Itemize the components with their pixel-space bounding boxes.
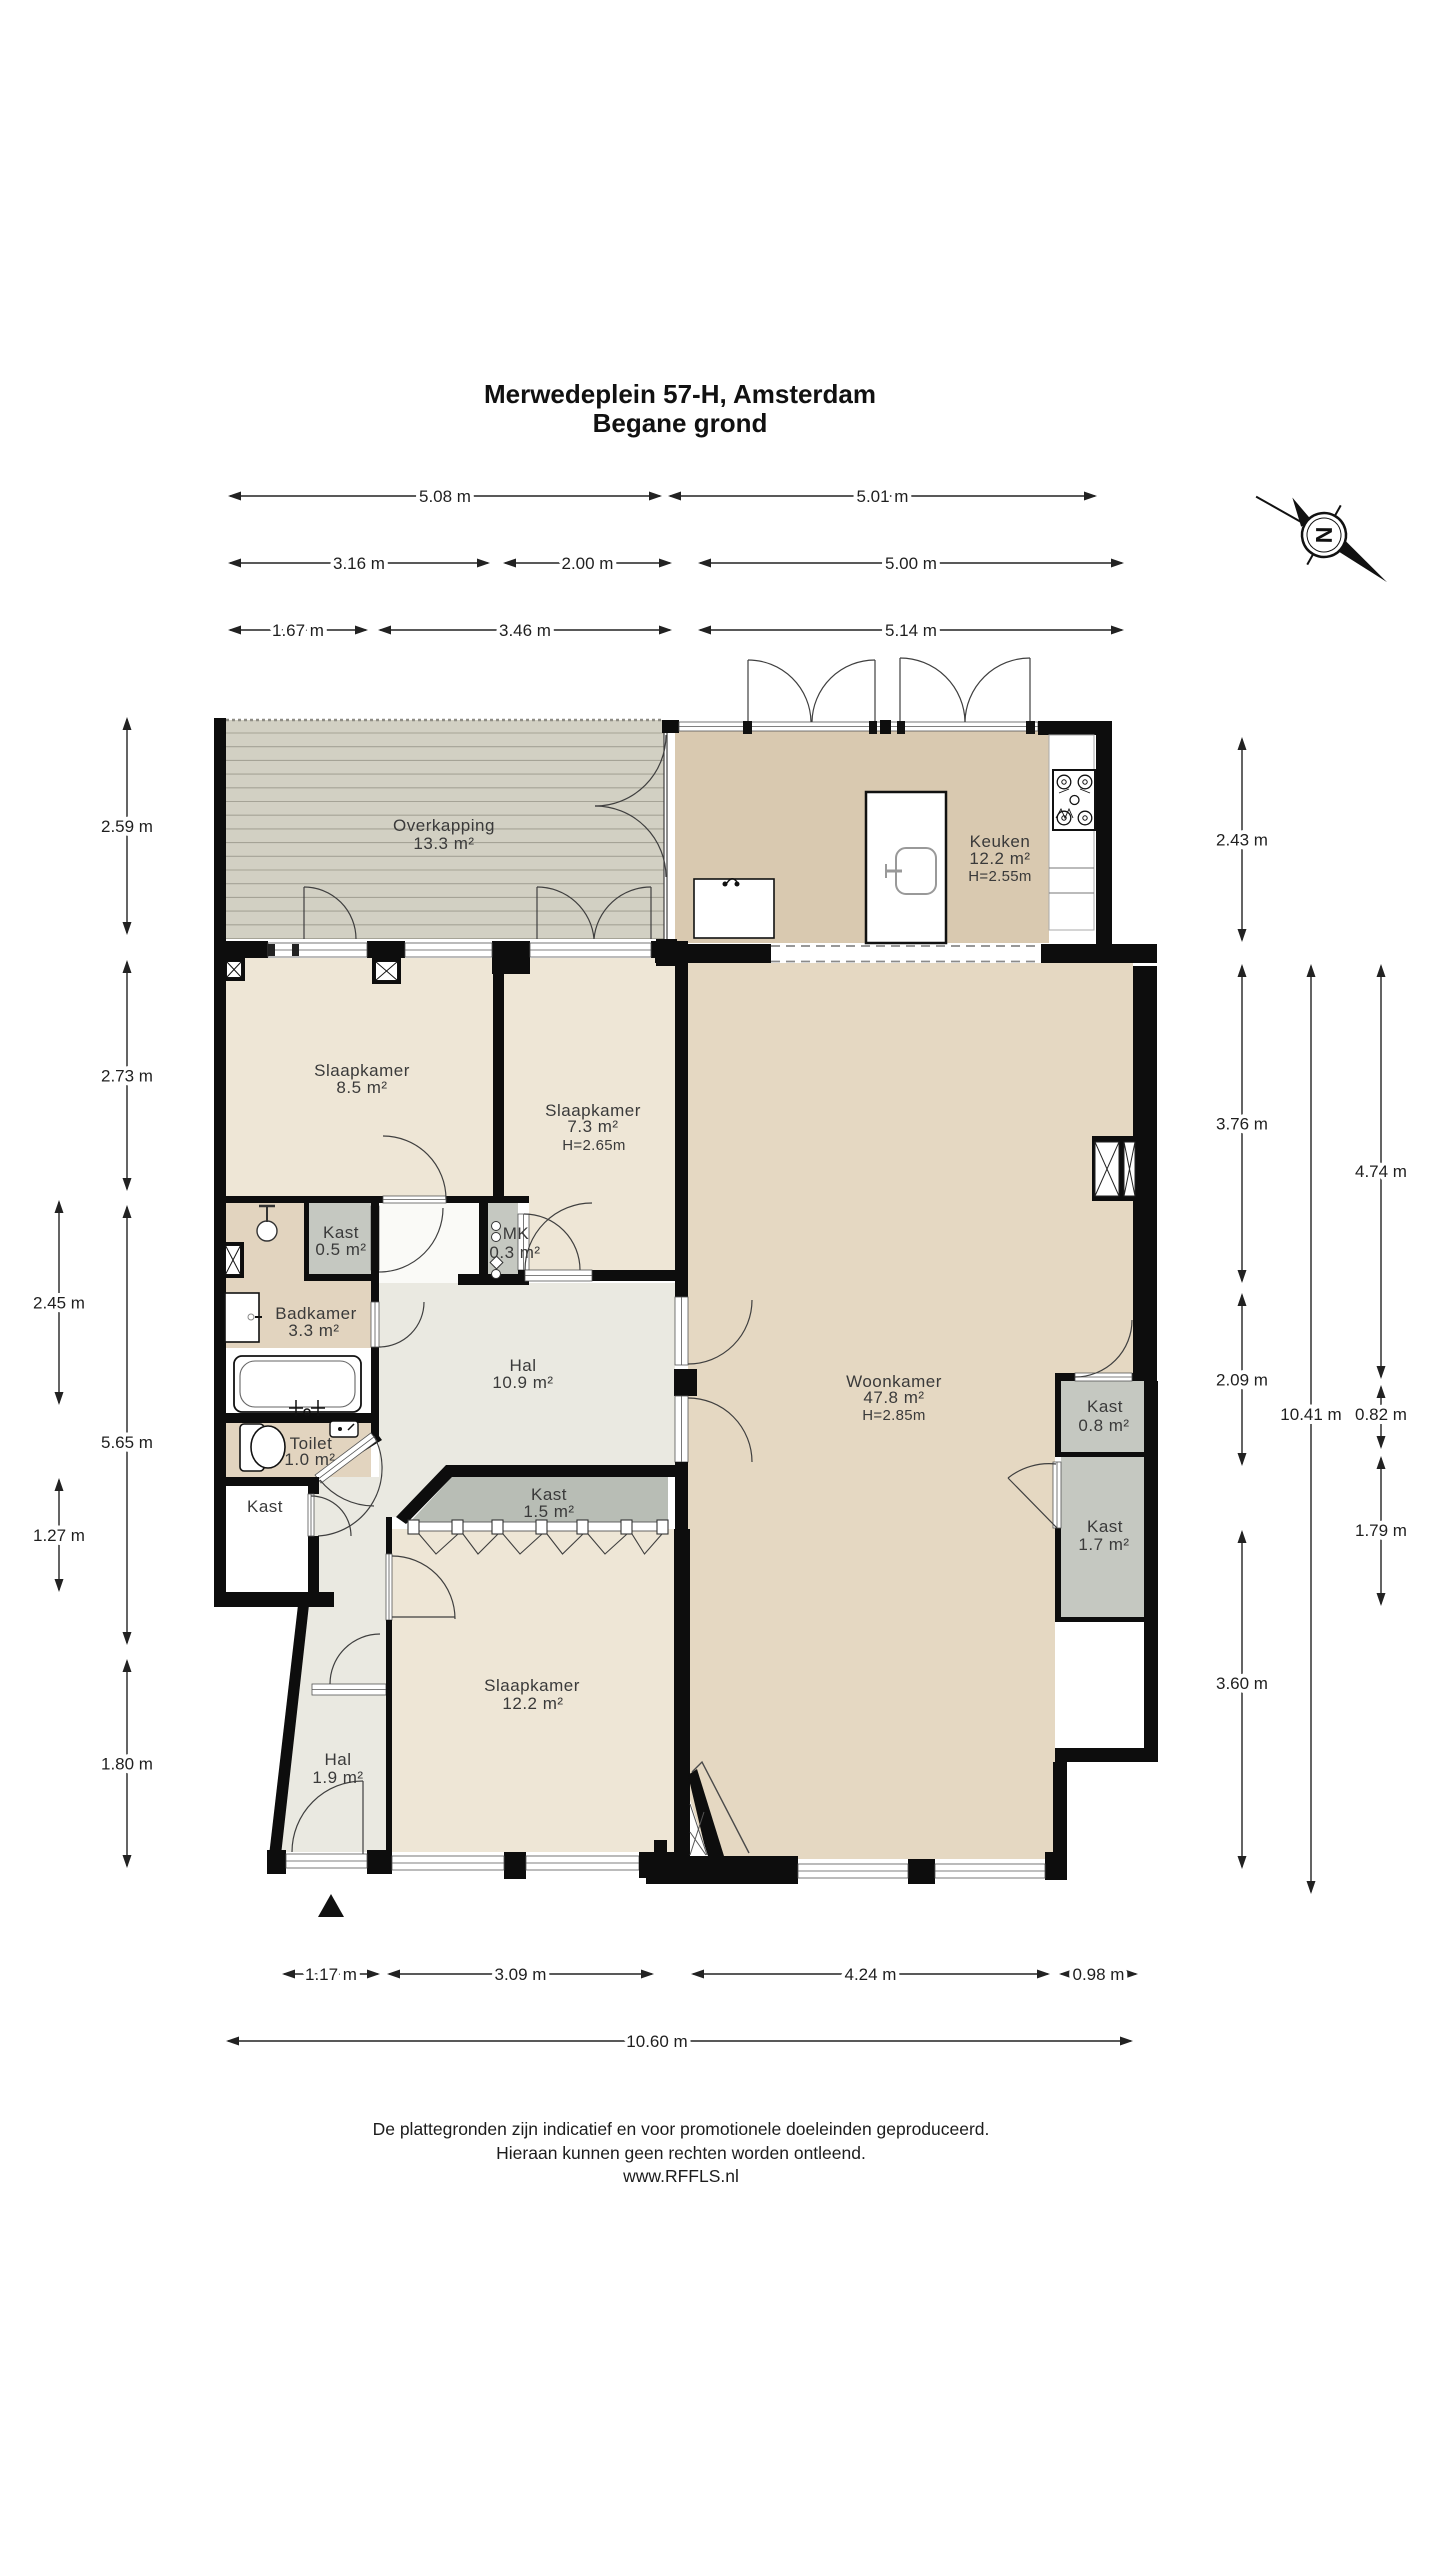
svg-text:47.8 m²: 47.8 m²	[863, 1388, 924, 1407]
svg-text:1.27 m: 1.27 m	[33, 1526, 85, 1545]
svg-text:8.5 m²: 8.5 m²	[336, 1078, 387, 1097]
svg-text:10.41 m: 10.41 m	[1280, 1405, 1341, 1424]
svg-text:5.08 m: 5.08 m	[419, 487, 471, 506]
svg-text:0.3 m²: 0.3 m²	[489, 1243, 540, 1262]
svg-text:H=2.85m: H=2.85m	[862, 1407, 925, 1424]
svg-text:13.3 m²: 13.3 m²	[413, 834, 474, 853]
svg-text:2.45 m: 2.45 m	[33, 1294, 85, 1313]
svg-text:Hal: Hal	[324, 1750, 351, 1769]
svg-text:3.3 m²: 3.3 m²	[288, 1321, 339, 1340]
svg-text:1.80 m: 1.80 m	[101, 1755, 153, 1774]
svg-text:1.17 m: 1.17 m	[305, 1965, 357, 1984]
svg-text:3.76 m: 3.76 m	[1216, 1115, 1268, 1134]
svg-text:1.9 m²: 1.9 m²	[312, 1768, 363, 1787]
svg-text:Kast: Kast	[1087, 1397, 1123, 1416]
svg-text:4.24 m: 4.24 m	[845, 1965, 897, 1984]
svg-text:0.8 m²: 0.8 m²	[1078, 1416, 1129, 1435]
svg-text:0.98 m: 0.98 m	[1073, 1965, 1125, 1984]
svg-text:2.00 m: 2.00 m	[562, 554, 614, 573]
svg-text:3.46 m: 3.46 m	[499, 621, 551, 640]
svg-text:2.09 m: 2.09 m	[1216, 1371, 1268, 1390]
svg-text:3.09 m: 3.09 m	[495, 1965, 547, 1984]
svg-text:5.65 m: 5.65 m	[101, 1433, 153, 1452]
svg-text:MK: MK	[503, 1224, 530, 1243]
svg-text:5.00 m: 5.00 m	[885, 554, 937, 573]
svg-text:0.82 m: 0.82 m	[1355, 1405, 1407, 1424]
svg-text:Slaapkamer: Slaapkamer	[484, 1676, 580, 1695]
svg-text:Merwedeplein 57-H, Amsterdam: Merwedeplein 57-H, Amsterdam	[484, 379, 876, 409]
svg-text:H=2.55m: H=2.55m	[968, 868, 1031, 885]
svg-text:5.01 m: 5.01 m	[857, 487, 909, 506]
svg-text:De plattegronden zijn indicati: De plattegronden zijn indicatief en voor…	[373, 2119, 990, 2139]
svg-text:Overkapping: Overkapping	[393, 816, 495, 835]
svg-text:5.14 m: 5.14 m	[885, 621, 937, 640]
svg-text:3.16 m: 3.16 m	[333, 554, 385, 573]
svg-text:0.5 m²: 0.5 m²	[315, 1240, 366, 1259]
svg-text:1.79 m: 1.79 m	[1355, 1521, 1407, 1540]
svg-text:12.2 m²: 12.2 m²	[502, 1694, 563, 1713]
svg-text:4.74 m: 4.74 m	[1355, 1162, 1407, 1181]
svg-text:2.59 m: 2.59 m	[101, 817, 153, 836]
svg-text:Hieraan kunnen geen rechten wo: Hieraan kunnen geen rechten worden ontle…	[496, 2143, 866, 2163]
svg-text:3.60 m: 3.60 m	[1216, 1674, 1268, 1693]
svg-text:Begane grond: Begane grond	[593, 408, 768, 438]
svg-text:Kast: Kast	[247, 1497, 283, 1516]
svg-text:1.67 m: 1.67 m	[272, 621, 324, 640]
svg-text:2.43 m: 2.43 m	[1216, 831, 1268, 850]
svg-text:H=2.65m: H=2.65m	[562, 1137, 625, 1154]
svg-text:2.73 m: 2.73 m	[101, 1067, 153, 1086]
svg-text:12.2 m²: 12.2 m²	[969, 849, 1030, 868]
svg-text:Kast: Kast	[1087, 1517, 1123, 1536]
svg-text:1.5 m²: 1.5 m²	[523, 1502, 574, 1521]
svg-text:1.0 m²: 1.0 m²	[284, 1450, 335, 1469]
svg-text:N: N	[1311, 527, 1337, 544]
svg-text:1.7 m²: 1.7 m²	[1078, 1535, 1129, 1554]
svg-text:10.9 m²: 10.9 m²	[492, 1373, 553, 1392]
svg-text:7.3 m²: 7.3 m²	[567, 1117, 618, 1136]
svg-text:www.RFFLS.nl: www.RFFLS.nl	[622, 2166, 739, 2186]
svg-text:10.60 m: 10.60 m	[626, 2032, 687, 2051]
